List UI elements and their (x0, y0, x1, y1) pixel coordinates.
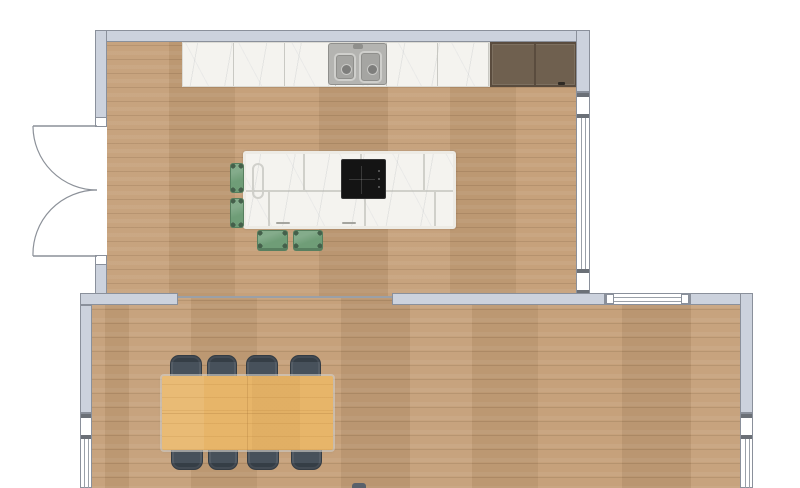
bar-stool[interactable] (230, 163, 244, 193)
drawer-handle-icon (342, 222, 356, 224)
kitchen-right-wall-upper (576, 30, 590, 92)
cabinet-door-divider (534, 44, 536, 85)
dining-top-wall-left (80, 293, 178, 305)
window-glazing (88, 439, 89, 488)
bar-stool[interactable] (293, 230, 323, 251)
room-threshold-line (178, 296, 392, 298)
cabinet-handle-icon (558, 82, 565, 85)
window-mullion (81, 435, 91, 439)
window-mullion (81, 414, 91, 418)
sink-drain-icon (341, 64, 352, 75)
kitchen-top-wall (95, 30, 590, 42)
dining-right-window[interactable] (740, 413, 753, 488)
window-glazing (585, 118, 586, 269)
window-glazing (84, 439, 85, 488)
cutoff-furniture[interactable] (352, 483, 366, 488)
kitchen-left-wall-upper (95, 30, 107, 118)
window-end-post (606, 294, 614, 304)
floor-plan-canvas (0, 0, 800, 488)
drawer-handle-icon (276, 222, 290, 224)
burner-guide-line (361, 166, 362, 194)
cooktop[interactable] (341, 159, 386, 199)
window-end-post (681, 294, 689, 304)
window-mullion (741, 414, 752, 418)
window-glazing (614, 301, 681, 302)
window-glazing (745, 439, 746, 488)
window-mullion (577, 269, 589, 273)
table-plank-seam (247, 376, 248, 450)
control-dot-icon (378, 170, 380, 172)
dining-left-window[interactable] (80, 413, 92, 488)
dining-right-wall (740, 293, 753, 413)
window-mullion (577, 114, 589, 118)
sink-drain-icon (367, 64, 378, 75)
island-seam (423, 154, 425, 190)
island-seam (268, 192, 270, 226)
window-glazing (749, 439, 750, 488)
kitchen-sink[interactable] (328, 43, 387, 85)
burner-guide-line (349, 179, 375, 180)
kitchen-right-window[interactable] (576, 92, 590, 293)
double-door[interactable] (30, 118, 110, 264)
island-prep-basin-outline (252, 163, 264, 199)
window-glazing (614, 297, 681, 298)
kitchen-island[interactable] (243, 151, 456, 229)
control-dot-icon (378, 186, 380, 188)
window-mullion (741, 435, 752, 439)
window-glazing (581, 118, 582, 269)
bar-stool[interactable] (230, 198, 244, 228)
dining-left-wall (80, 305, 92, 413)
control-dot-icon (378, 178, 380, 180)
island-seam (434, 192, 436, 226)
door-swing-icon (30, 118, 110, 264)
dining-top-wall-mid (392, 293, 605, 305)
sink-basin-right (359, 51, 382, 83)
tall-cabinet[interactable] (490, 42, 577, 87)
bar-stool[interactable] (257, 230, 288, 251)
dining-table[interactable] (162, 376, 333, 450)
faucet-icon (353, 44, 363, 49)
island-seam (303, 154, 305, 190)
sink-basin-left (334, 53, 356, 81)
window-mullion (577, 93, 589, 97)
dining-top-window[interactable] (605, 293, 690, 305)
